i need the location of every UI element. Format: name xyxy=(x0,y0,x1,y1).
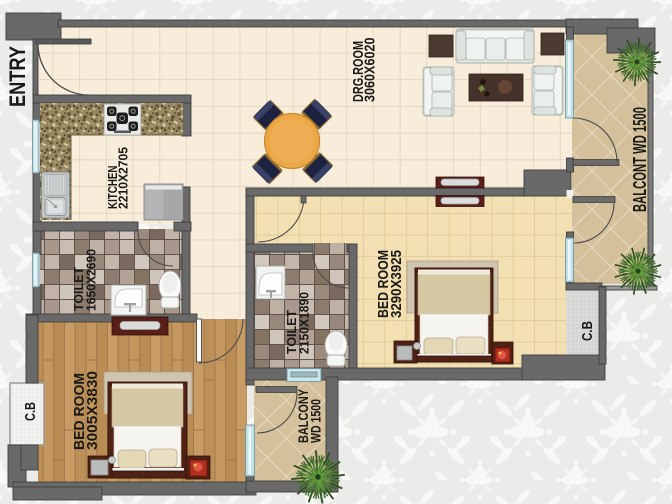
svg-text:BED ROOM3290X3925: BED ROOM3290X3925 xyxy=(375,250,405,318)
svg-text:C.B: C.B xyxy=(22,402,39,421)
svg-text:ENTRY: ENTRY xyxy=(5,46,30,107)
svg-text:BED ROOM3005X3830: BED ROOM3005X3830 xyxy=(71,371,101,450)
svg-text:C.B: C.B xyxy=(579,321,596,341)
svg-text:BALCONT WD 1500: BALCONT WD 1500 xyxy=(630,107,650,212)
svg-text:DRG.ROOM3060X6020: DRG.ROOM3060X6020 xyxy=(351,38,379,103)
